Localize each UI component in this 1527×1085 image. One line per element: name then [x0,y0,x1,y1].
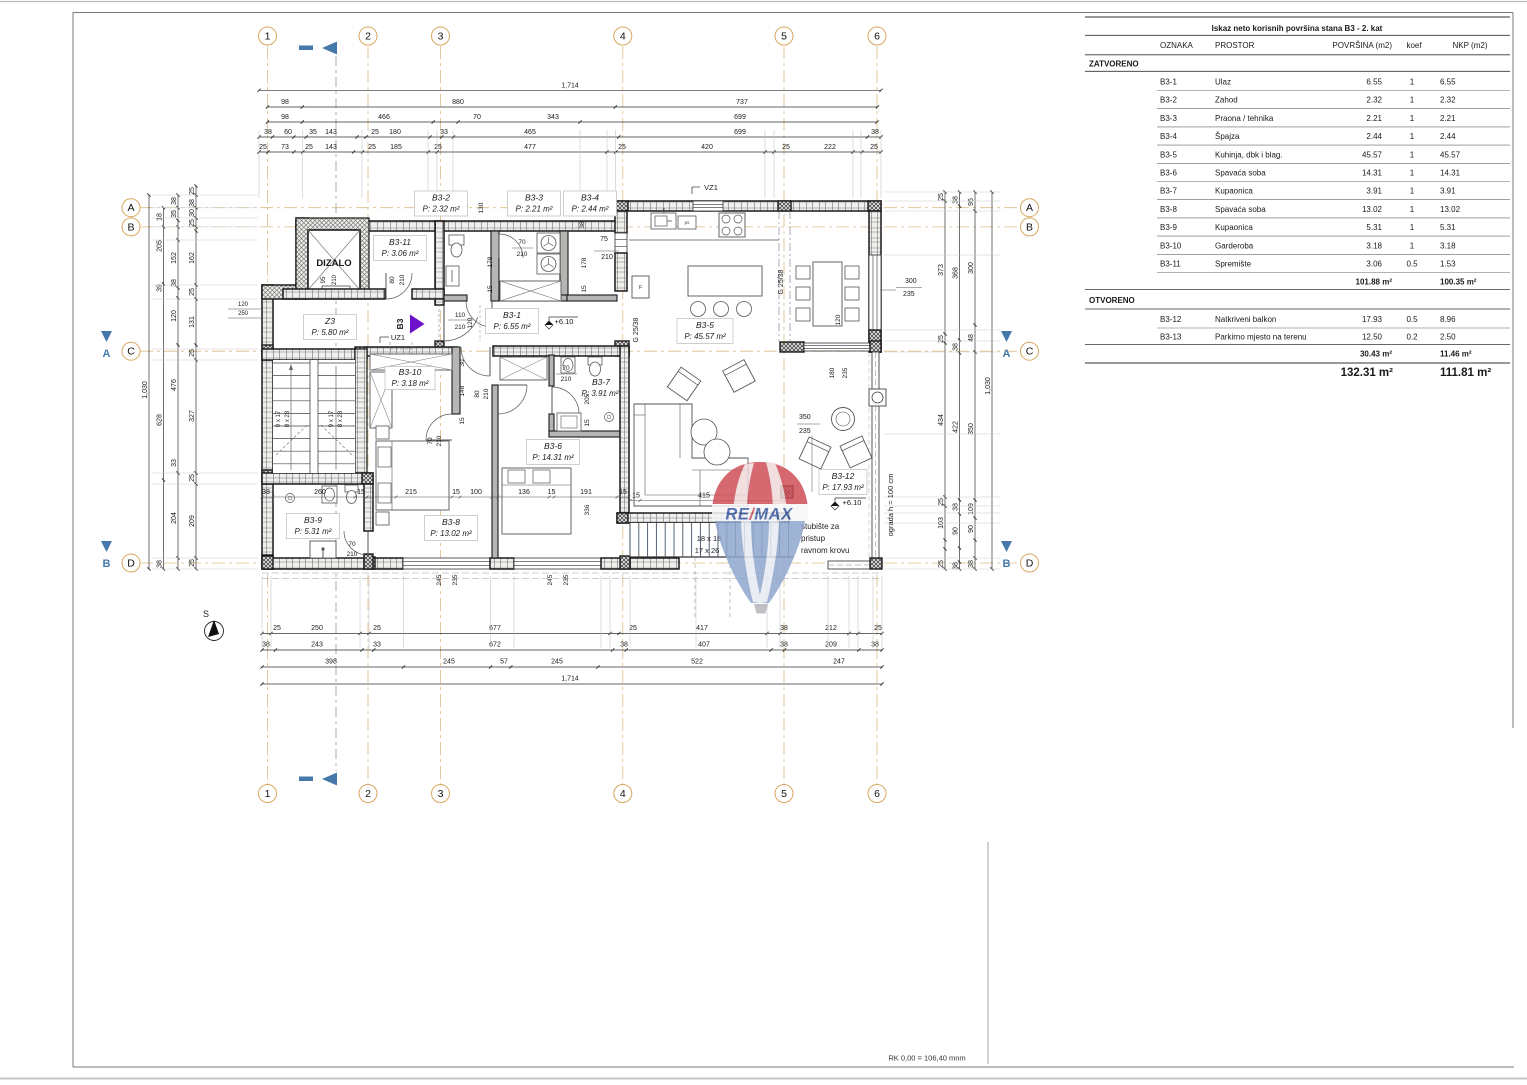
svg-text:25: 25 [938,498,945,506]
svg-text:70: 70 [473,114,481,121]
svg-text:57: 57 [500,659,508,666]
svg-text:1: 1 [265,788,271,800]
svg-text:G 25/38: G 25/38 [778,269,785,294]
svg-text:422: 422 [953,421,960,433]
svg-text:38: 38 [780,625,788,632]
svg-text:B3-1: B3-1 [1160,78,1177,87]
svg-text:25: 25 [874,625,882,632]
svg-text:210: 210 [561,376,572,383]
svg-text:2: 2 [365,31,371,43]
svg-text:0.5: 0.5 [1406,315,1418,324]
svg-text:417: 417 [696,625,708,632]
svg-text:38: 38 [262,642,270,649]
svg-text:70: 70 [348,541,356,548]
svg-text:2.32: 2.32 [1366,96,1382,105]
svg-text:P: 2.44 m²: P: 2.44 m² [572,205,609,214]
svg-text:15: 15 [632,493,640,500]
svg-text:6.55: 6.55 [1440,78,1456,87]
svg-text:336: 336 [584,504,591,515]
svg-text:6.55: 6.55 [1366,78,1382,87]
svg-text:25: 25 [259,144,267,151]
svg-text:210: 210 [601,254,613,261]
svg-text:210: 210 [399,274,406,285]
svg-text:1,714: 1,714 [561,82,579,89]
svg-text:628: 628 [157,414,164,426]
svg-text:120: 120 [467,317,474,328]
svg-text:120: 120 [171,310,178,322]
svg-text:OZNAKA: OZNAKA [1160,41,1194,50]
svg-text:130: 130 [478,202,485,213]
svg-text:235: 235 [452,574,459,585]
svg-text:S: S [203,609,209,619]
svg-text:25: 25 [189,219,196,227]
svg-text:2.44: 2.44 [1440,132,1456,141]
svg-text:48: 48 [968,334,975,342]
svg-text:B3-5: B3-5 [1160,150,1177,159]
svg-text:1: 1 [1410,187,1415,196]
svg-text:B3-3: B3-3 [1160,114,1177,123]
svg-text:POVRŠINA (m2): POVRŠINA (m2) [1332,41,1392,50]
svg-text:191: 191 [580,489,592,496]
svg-text:6: 6 [874,31,880,43]
svg-text:25: 25 [305,144,313,151]
svg-text:9 x 17: 9 x 17 [329,410,335,427]
svg-text:522: 522 [691,659,703,666]
svg-text:A: A [1026,202,1033,214]
svg-text:136: 136 [518,489,530,496]
svg-text:A: A [103,348,111,360]
svg-text:Parkirno mjesto na terenu: Parkirno mjesto na terenu [1215,333,1307,342]
svg-text:90: 90 [953,527,960,535]
svg-text:373: 373 [938,264,945,276]
svg-text:B3-11: B3-11 [389,237,411,247]
svg-text:1: 1 [1410,96,1415,105]
svg-text:70: 70 [562,365,570,372]
svg-text:NKP (m2): NKP (m2) [1453,41,1488,50]
svg-text:Ulaz: Ulaz [1215,78,1231,87]
svg-text:17.93: 17.93 [1362,315,1383,324]
svg-text:9 x 17: 9 x 17 [276,410,282,427]
svg-text:15: 15 [459,417,466,425]
svg-text:B3-9: B3-9 [1160,223,1177,232]
svg-text:B: B [127,221,134,233]
svg-text:132.31 m²: 132.31 m² [1341,367,1394,379]
svg-text:210: 210 [347,551,358,558]
svg-text:UZ1: UZ1 [391,333,405,342]
svg-text:70: 70 [518,239,526,246]
svg-text:Iskaz neto korisnih površina s: Iskaz neto korisnih površina stana B3 - … [1212,24,1383,33]
svg-text:245: 245 [551,659,563,666]
svg-text:11.46 m²: 11.46 m² [1440,350,1472,359]
svg-text:98: 98 [281,99,289,106]
svg-text:15: 15 [548,489,556,496]
svg-text:3.06: 3.06 [1366,260,1382,269]
svg-text:45.57: 45.57 [1362,150,1383,159]
svg-text:P: 5.80 m²: P: 5.80 m² [312,328,349,337]
svg-text:178: 178 [581,257,588,268]
svg-text:5: 5 [781,31,787,43]
svg-text:+6.10: +6.10 [843,498,862,507]
svg-text:466: 466 [378,114,390,121]
svg-text:38: 38 [953,562,960,570]
svg-text:25: 25 [938,193,945,201]
svg-text:38: 38 [579,221,586,229]
svg-text:P: 13.02 m²: P: 13.02 m² [430,529,472,538]
svg-text:300: 300 [968,262,975,274]
svg-text:350: 350 [968,423,975,435]
svg-text:407: 407 [698,642,710,649]
svg-text:15: 15 [357,489,365,496]
svg-text:P: 2.21 m²: P: 2.21 m² [516,205,553,214]
svg-text:Natkriveni balkon: Natkriveni balkon [1215,315,1276,324]
svg-text:215: 215 [405,489,417,496]
svg-text:A: A [1003,348,1011,360]
svg-text:699: 699 [734,114,746,121]
svg-text:25: 25 [938,335,945,343]
svg-text:699: 699 [734,129,746,136]
svg-text:737: 737 [736,99,748,106]
svg-text:2: 2 [365,788,371,800]
svg-text:3.18: 3.18 [1440,241,1456,250]
svg-text:8 x 28: 8 x 28 [338,410,344,427]
svg-text:25: 25 [870,144,878,151]
svg-text:38: 38 [780,642,788,649]
svg-text:38: 38 [264,129,272,136]
svg-text:210: 210 [436,435,443,446]
svg-text:25: 25 [371,129,379,136]
svg-text:P: 3.18 m²: P: 3.18 m² [392,379,429,388]
svg-text:P: 3.91 m²: P: 3.91 m² [582,389,619,398]
svg-text:110: 110 [455,312,466,319]
svg-text:25: 25 [629,625,637,632]
svg-text:1: 1 [1410,205,1415,214]
svg-text:B: B [1026,221,1033,233]
svg-text:ograda h = 100 cm: ograda h = 100 cm [886,474,895,537]
svg-text:185: 185 [390,144,402,151]
svg-text:1.53: 1.53 [1440,260,1456,269]
svg-text:ravnom krovu: ravnom krovu [801,546,849,555]
svg-text:25: 25 [618,144,626,151]
svg-text:3.18: 3.18 [1366,241,1382,250]
svg-text:1,030: 1,030 [142,381,149,399]
svg-text:38: 38 [953,196,960,204]
svg-text:2.21: 2.21 [1366,114,1382,123]
svg-text:204: 204 [171,512,178,524]
svg-text:C: C [1026,346,1034,358]
svg-text:15: 15 [487,285,494,293]
svg-text:38: 38 [968,560,975,568]
svg-text:30: 30 [189,209,196,217]
svg-text:38: 38 [953,343,960,351]
svg-text:18: 18 [157,213,164,221]
svg-text:P: 6.55 m²: P: 6.55 m² [494,322,531,331]
svg-text:15: 15 [581,285,588,293]
svg-text:2.44: 2.44 [1366,132,1382,141]
svg-text:120: 120 [238,302,249,308]
svg-text:245: 245 [547,574,554,585]
svg-text:111.81 m²: 111.81 m² [1440,367,1491,379]
svg-text:4: 4 [620,788,626,800]
svg-text:14.31: 14.31 [1362,169,1383,178]
svg-text:5.31: 5.31 [1440,223,1456,232]
svg-text:350: 350 [799,414,811,421]
svg-text:243: 243 [311,642,323,649]
svg-text:35: 35 [309,129,317,136]
svg-text:25: 25 [189,288,196,296]
svg-text:8.96: 8.96 [1440,315,1456,324]
svg-text:B3-4: B3-4 [581,193,599,203]
svg-text:880: 880 [452,99,464,106]
svg-text:B3-1: B3-1 [503,310,521,320]
svg-text:1: 1 [1410,78,1415,87]
svg-text:2.50: 2.50 [1440,333,1456,342]
svg-text:3.91: 3.91 [1440,187,1456,196]
svg-text:477: 477 [524,144,536,151]
svg-text:RE/MAX: RE/MAX [725,506,793,524]
svg-text:35: 35 [171,210,178,218]
svg-text:4: 4 [620,31,626,43]
svg-text:stubište za: stubište za [801,522,840,531]
svg-text:38: 38 [953,503,960,511]
svg-text:B3-3: B3-3 [525,193,543,203]
svg-text:Kupaonica: Kupaonica [1215,187,1253,196]
svg-text:38: 38 [871,129,879,136]
svg-text:143: 143 [325,129,337,136]
svg-text:B3: B3 [395,318,405,329]
svg-text:13.02: 13.02 [1440,205,1461,214]
svg-text:30.43 m²: 30.43 m² [1360,350,1392,359]
svg-text:B3-8: B3-8 [1160,205,1177,214]
svg-text:B3-2: B3-2 [1160,96,1177,105]
svg-text:B3-5: B3-5 [696,320,714,330]
svg-text:25: 25 [189,474,196,482]
svg-text:Garderoba: Garderoba [1215,241,1254,250]
svg-text:P: 2.32 m²: P: 2.32 m² [423,205,460,214]
svg-text:398: 398 [325,659,337,666]
svg-text:D: D [127,558,135,570]
svg-text:2.21: 2.21 [1440,114,1456,123]
svg-text:15: 15 [619,489,627,496]
svg-text:95: 95 [968,198,975,206]
svg-text:Praona / tehnika: Praona / tehnika [1215,114,1274,123]
svg-text:Spavaća soba: Spavaća soba [1215,205,1266,214]
svg-text:+6.10: +6.10 [555,317,574,326]
svg-text:25: 25 [273,625,281,632]
svg-text:B3-8: B3-8 [442,517,460,527]
svg-text:13.02: 13.02 [1362,205,1383,214]
svg-text:210: 210 [455,324,466,331]
svg-text:25: 25 [189,187,196,195]
svg-text:90: 90 [968,525,975,533]
svg-text:101.88 m²: 101.88 m² [1356,278,1393,287]
svg-text:B3-10: B3-10 [1160,241,1182,250]
svg-text:95: 95 [321,276,327,283]
svg-text:210: 210 [332,274,338,285]
svg-text:75: 75 [600,236,608,243]
svg-text:245: 245 [436,574,443,585]
svg-text:B3-11: B3-11 [1160,260,1181,269]
svg-text:131: 131 [189,316,196,328]
svg-text:B3-9: B3-9 [304,515,322,525]
svg-text:672: 672 [489,642,501,649]
svg-text:368: 368 [953,267,960,279]
svg-text:209: 209 [825,642,837,649]
svg-text:148: 148 [459,385,466,396]
svg-text:98: 98 [281,114,289,121]
svg-text:1,030: 1,030 [985,377,992,395]
svg-text:1: 1 [1410,241,1415,250]
svg-text:DIZALO: DIZALO [316,258,351,269]
svg-text:3.91: 3.91 [1366,187,1382,196]
svg-text:33: 33 [171,459,178,467]
svg-text:327: 327 [189,410,196,422]
svg-text:247: 247 [833,659,845,666]
svg-text:343: 343 [547,114,559,121]
svg-text:25: 25 [434,144,442,151]
svg-text:P: 17.93 m²: P: 17.93 m² [822,483,864,492]
svg-text:1: 1 [1410,169,1415,178]
svg-text:178: 178 [487,256,494,267]
svg-text:465: 465 [524,129,536,136]
svg-text:210: 210 [517,251,528,258]
svg-text:1: 1 [1410,223,1415,232]
svg-text:25: 25 [189,349,196,357]
svg-text:80: 80 [474,390,481,398]
svg-text:434: 434 [938,414,945,426]
svg-text:476: 476 [171,379,178,391]
svg-text:45.57: 45.57 [1440,150,1461,159]
svg-text:B3-12: B3-12 [1160,315,1182,324]
svg-text:B3-12: B3-12 [832,471,855,481]
svg-text:A: A [127,202,134,214]
svg-text:235: 235 [563,574,570,585]
svg-text:162: 162 [189,252,196,264]
svg-text:ZATVORENO: ZATVORENO [1089,60,1139,69]
svg-text:38: 38 [157,560,164,568]
svg-text:420: 420 [701,144,713,151]
svg-text:14.31: 14.31 [1440,169,1461,178]
svg-text:Zahod: Zahod [1215,96,1238,105]
svg-text:235: 235 [799,428,811,435]
svg-text:677: 677 [489,625,501,632]
svg-text:17 x 26: 17 x 26 [695,546,720,555]
svg-text:15: 15 [584,419,591,427]
svg-text:RK 0,00 = 106,40 mnm: RK 0,00 = 106,40 mnm [888,1054,965,1063]
svg-text:18 x 18: 18 x 18 [697,534,722,543]
svg-text:1: 1 [1410,114,1415,123]
svg-text:2.32: 2.32 [1440,96,1456,105]
svg-text:25: 25 [373,625,381,632]
svg-text:PROSTOR: PROSTOR [1215,41,1255,50]
svg-text:ps: ps [685,220,691,225]
svg-text:B: B [1003,558,1011,570]
svg-text:80: 80 [389,276,396,284]
svg-text:73: 73 [281,144,289,151]
svg-text:Spremište: Spremište [1215,260,1252,269]
svg-text:260: 260 [314,489,326,496]
svg-text:209: 209 [189,515,196,527]
svg-text:B3-7: B3-7 [592,377,610,387]
svg-text:15: 15 [452,489,460,496]
svg-text:OTVORENO: OTVORENO [1089,296,1135,305]
svg-text:415: 415 [698,493,710,500]
svg-text:30: 30 [459,359,466,367]
svg-text:25: 25 [189,559,196,567]
svg-text:3: 3 [438,31,444,43]
svg-text:B3-4: B3-4 [1160,132,1177,141]
svg-text:P: 45.57 m²: P: 45.57 m² [684,332,726,341]
svg-text:Z3: Z3 [324,316,335,326]
svg-text:38: 38 [189,199,196,207]
svg-text:100.35 m²: 100.35 m² [1440,278,1477,287]
svg-text:38: 38 [171,279,178,287]
svg-text:33: 33 [440,129,448,136]
svg-text:P: 14.31 m²: P: 14.31 m² [532,453,574,462]
svg-text:3: 3 [438,788,444,800]
svg-text:G 25/38: G 25/38 [633,317,640,342]
svg-text:5.31: 5.31 [1366,223,1382,232]
svg-text:245: 245 [443,659,455,666]
svg-text:25: 25 [368,144,376,151]
svg-text:koef: koef [1406,41,1422,50]
svg-text:B3-7: B3-7 [1160,187,1177,196]
svg-text:120: 120 [835,314,842,325]
svg-text:235: 235 [842,367,849,378]
svg-text:P: 5.31 m²: P: 5.31 m² [295,527,332,536]
svg-text:250: 250 [311,625,323,632]
svg-text:B3-13: B3-13 [1160,333,1182,342]
svg-text:212: 212 [825,625,837,632]
svg-text:1: 1 [1410,150,1415,159]
svg-text:D: D [1026,558,1034,570]
svg-text:Špajza: Špajza [1215,132,1240,141]
svg-text:38: 38 [871,642,879,649]
svg-text:143: 143 [325,144,337,151]
svg-text:0.5: 0.5 [1406,260,1418,269]
svg-text:0.2: 0.2 [1406,333,1418,342]
svg-text:pristup: pristup [801,534,826,543]
svg-text:250: 250 [238,311,249,317]
svg-text:25: 25 [782,144,790,151]
svg-text:VZ1: VZ1 [704,183,718,192]
svg-text:235: 235 [903,291,915,298]
svg-text:210: 210 [483,388,490,399]
svg-text:12.50: 12.50 [1362,333,1383,342]
svg-text:1: 1 [1410,132,1415,141]
svg-text:38: 38 [620,642,628,649]
svg-text:P: 3.06 m²: P: 3.06 m² [382,249,419,258]
svg-text:6: 6 [874,788,880,800]
svg-text:C: C [127,346,135,358]
svg-text:5: 5 [781,788,787,800]
svg-text:180: 180 [829,367,836,378]
svg-text:Kuhinja, dbk i blag.: Kuhinja, dbk i blag. [1215,150,1283,159]
svg-text:70: 70 [427,437,434,445]
svg-text:33: 33 [373,642,381,649]
svg-text:B3-6: B3-6 [1160,169,1177,178]
svg-text:205: 205 [157,240,164,252]
svg-text:1,714: 1,714 [561,676,579,683]
svg-text:222: 222 [824,144,836,151]
svg-text:Spavaća soba: Spavaća soba [1215,169,1266,178]
svg-text:B: B [103,558,111,570]
svg-text:Kupaonica: Kupaonica [1215,223,1253,232]
svg-text:1: 1 [265,31,271,43]
svg-text:300: 300 [905,278,917,285]
svg-text:60: 60 [284,129,292,136]
svg-text:B3-10: B3-10 [399,367,422,377]
svg-text:100: 100 [470,489,482,496]
